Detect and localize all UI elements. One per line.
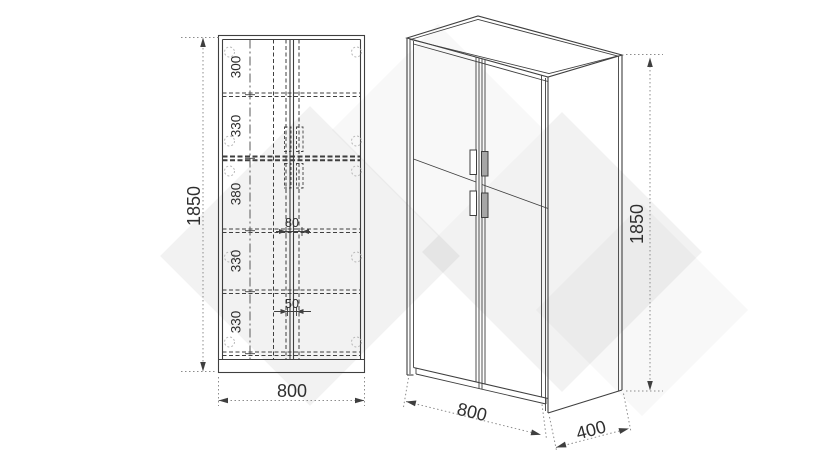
front-height-label: 1850 [185, 186, 203, 226]
iso-view [404, 16, 664, 451]
technical-drawing [0, 0, 825, 464]
iso-height-label: 1850 [628, 204, 646, 244]
front-section-label-1: 300 [229, 56, 243, 79]
front-section-dimension-chain [245, 40, 255, 360]
front-section-label-5: 330 [229, 311, 243, 334]
iso-door-gap-lines [476, 58, 485, 390]
wardrobe-technical-drawing: 1850 800 300 330 380 330 330 80 50 1850 … [0, 0, 825, 464]
front-width-label: 800 [277, 382, 307, 400]
iso-door-split-lines [414, 159, 549, 209]
front-gap-50-label: 50 [285, 298, 299, 311]
front-section-label-3: 380 [229, 183, 243, 206]
front-section-label-4: 330 [229, 250, 243, 273]
iso-cabinet-outline [407, 16, 622, 413]
front-section-label-2: 330 [229, 115, 243, 138]
front-gap-80-label: 80 [285, 217, 299, 230]
front-view [181, 36, 365, 407]
